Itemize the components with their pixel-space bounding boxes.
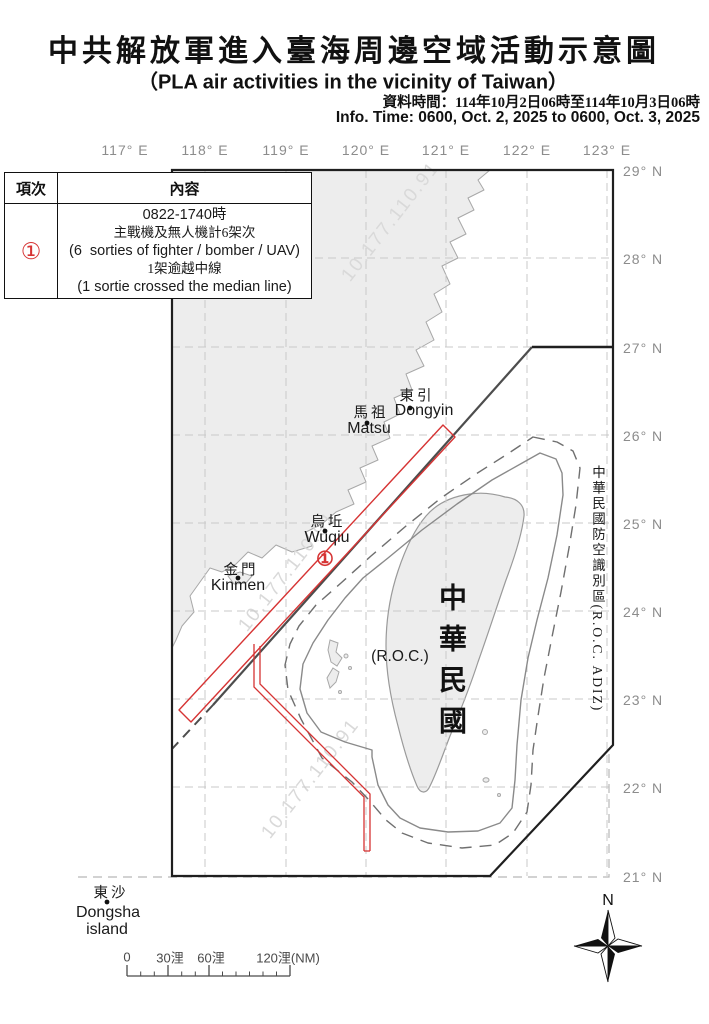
penghu-islands: [327, 640, 352, 694]
row-index-badge: ①: [5, 204, 58, 299]
dongsha-label-zh: 東沙: [94, 882, 129, 903]
dongsha-label-en: Dongsha: [76, 904, 140, 922]
dongsha-label-en2: island: [86, 921, 128, 939]
wuqiu-label-en: Wuqiu: [304, 529, 349, 547]
lat-label: 25° N: [623, 516, 663, 532]
activity-time: 0822-1740時: [58, 206, 311, 224]
lat-label: 22° N: [623, 780, 663, 796]
lon-label: 121° E: [422, 142, 470, 158]
lon-label: 117° E: [101, 142, 148, 158]
matsu-label-en: Matsu: [347, 420, 391, 438]
scale-tick-label: 0: [123, 950, 130, 965]
lon-label: 118° E: [181, 142, 228, 158]
offshore-islets: [483, 730, 501, 797]
route-marker-badge: ①: [316, 547, 334, 572]
lat-label: 29° N: [623, 163, 663, 179]
lon-label: 120° E: [342, 142, 390, 158]
lat-label: 26° N: [623, 428, 663, 444]
page-title: 中共解放軍進入臺海周邊空域活動示意圖: [48, 26, 660, 70]
activity-table: 項次 內容 ① 0822-1740時 主戰機及無人機計6架次 (6 sortie…: [4, 172, 312, 299]
roc-abbrev-label: (R.O.C.): [371, 648, 429, 666]
activity-note-zh: 1架逾越中線: [58, 260, 311, 278]
dongyin-label-en: Dongyin: [395, 402, 454, 420]
lat-label: 23° N: [623, 692, 663, 708]
activity-desc-zh: 主戰機及無人機計6架次: [58, 224, 311, 242]
scale-bar: [127, 965, 290, 976]
scale-tick-label: 120浬(NM): [256, 948, 320, 967]
lon-label: 123° E: [583, 142, 631, 158]
scale-tick-label: 30浬: [156, 948, 183, 967]
col-header-index: 項次: [5, 173, 58, 204]
info-time-en: Info. Time: 0600, Oct. 2, 2025 to 0600, …: [336, 109, 700, 127]
lon-label: 122° E: [503, 142, 551, 158]
adiz-boundary-label: 中華民國防空識別區(R.O.C. ADIZ): [587, 465, 607, 712]
table-header-row: 項次 內容: [5, 173, 312, 204]
median-line-dashed-tail: [172, 705, 213, 749]
kinmen-label-en: Kinmen: [211, 577, 265, 595]
compass-rose-icon: [574, 910, 642, 982]
lat-label: 28° N: [623, 251, 663, 267]
lat-label: 21° N: [623, 869, 663, 885]
lat-label: 27° N: [623, 340, 663, 356]
row-content-cell: 0822-1740時 主戰機及無人機計6架次 (6 sorties of fig…: [58, 204, 312, 299]
compass-north-label: N: [602, 892, 614, 910]
activity-desc-en: (6 sorties of fighter / bomber / UAV): [58, 242, 311, 260]
table-row: ① 0822-1740時 主戰機及無人機計6架次 (6 sorties of f…: [5, 204, 312, 299]
activity-note-en: (1 sortie crossed the median line): [58, 278, 311, 296]
pla-activity-bulletin: 10.177.110.91 10.177.110.91 10.177.110.9…: [0, 0, 709, 1024]
lon-label: 119° E: [262, 142, 309, 158]
lat-label: 24° N: [623, 604, 663, 620]
taiwan-roc-label: 中華民國: [430, 583, 470, 747]
scale-tick-label: 60浬: [197, 948, 224, 967]
col-header-content: 內容: [58, 173, 312, 204]
